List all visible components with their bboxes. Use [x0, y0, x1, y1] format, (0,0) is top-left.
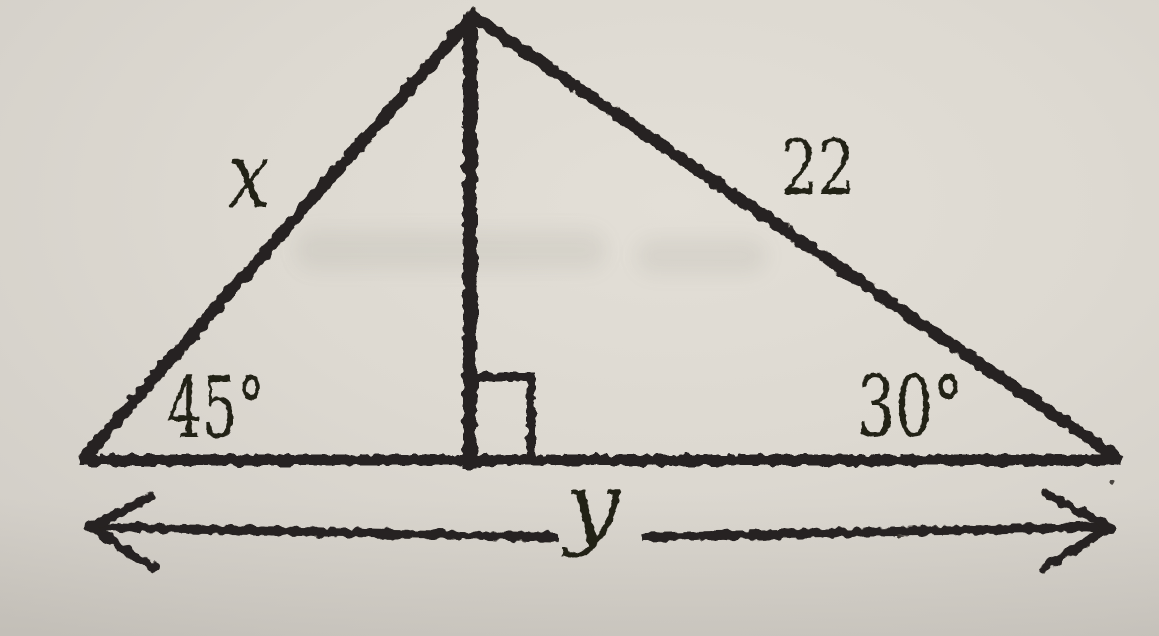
right-angle-label: 30°: [857, 358, 963, 456]
triangle-diagram: x 22 45° 30° y: [0, 0, 1159, 636]
worksheet-photo: x 22 45° 30° y: [0, 0, 1159, 636]
left-angle-label: 45°: [167, 359, 265, 457]
paper-speck: [1111, 480, 1116, 485]
triangle-left-side: [85, 16, 473, 457]
dimension-line-left-segment: [96, 527, 553, 537]
diagram-labels: x 22 45° 30° y: [167, 122, 963, 559]
base-dimension-label: y: [561, 452, 621, 559]
left-side-label: x: [228, 122, 270, 229]
right-angle-marker: [476, 377, 531, 458]
right-side-label: 22: [781, 123, 855, 212]
dimension-line-right-segment: [646, 527, 1102, 537]
triangle-right-side: [473, 16, 1116, 457]
